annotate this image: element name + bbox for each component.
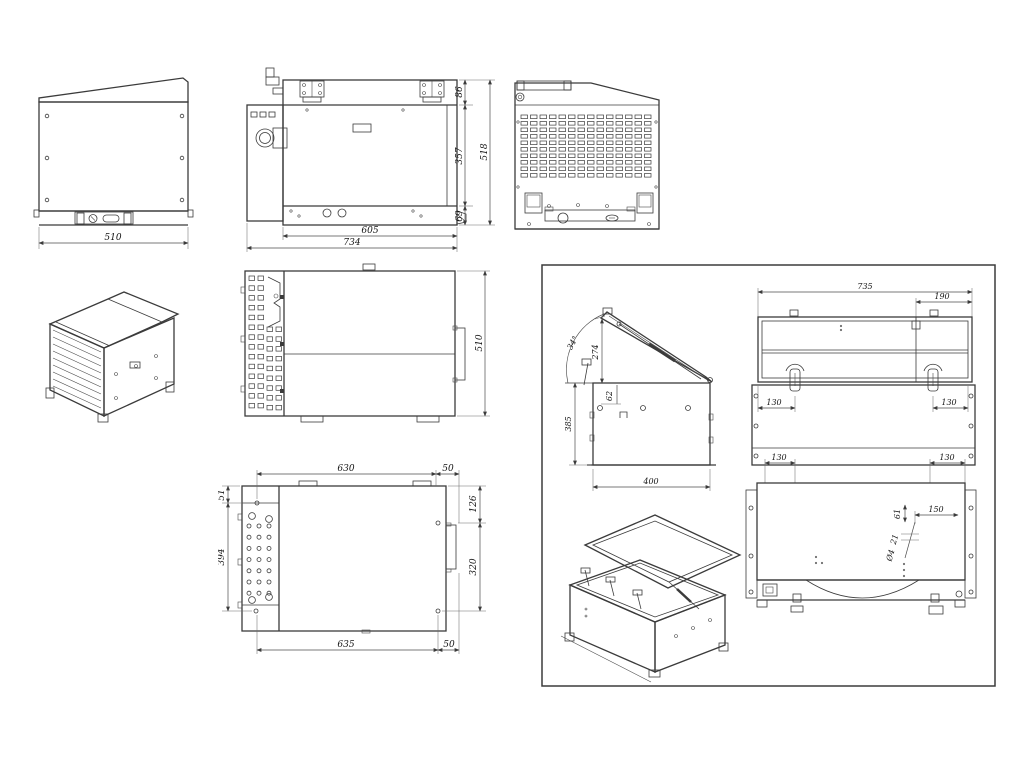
dim-openplan-latch-right: 130: [939, 453, 954, 462]
dim-bottom-span: 635: [337, 640, 354, 650]
detail-panel-border: [542, 265, 995, 686]
dim-open-height: 385: [564, 416, 573, 431]
bottom-dims-right: 126 320: [442, 486, 486, 611]
dim-openfront-latch-left: 130: [766, 398, 781, 407]
plan-outline: [245, 271, 455, 416]
front-screws: [45, 114, 184, 202]
plan-vent-grid-left: [249, 276, 264, 408]
isometric-view-closed: [12, 278, 187, 438]
iso-closed-body: [50, 292, 178, 416]
dim-bottom-right-lower: 320: [469, 558, 479, 575]
dim-side-base: 69: [455, 210, 465, 222]
bottom-dims-top: 630 50: [257, 464, 459, 523]
drawing-sheet: 510: [0, 0, 1024, 768]
bottom-dims-bottom: 635 50: [257, 573, 459, 654]
dim-openfront-width: 735: [857, 282, 872, 291]
side-hinges: [300, 81, 444, 102]
iso-closed-louvers: [53, 330, 101, 408]
plan-vent-grid-right: [267, 327, 282, 410]
dim-open-angle: 34°: [565, 334, 580, 351]
bottom-outline: [242, 486, 446, 631]
front-outline: [34, 78, 193, 225]
dim-bottom-edge: 51: [218, 489, 227, 500]
open-plan-view: 130 130 150 61: [746, 453, 976, 614]
dim-openplan-pitch: 21: [889, 533, 901, 546]
plan-dim-depth: 510: [457, 271, 490, 416]
plan-edge-details: [241, 264, 465, 422]
dim-openfront-latch-right: 130: [941, 398, 956, 407]
dim-side-body: 357: [455, 147, 465, 164]
dim-bottom-right-upper: 126: [469, 495, 479, 512]
isometric-view-open: [561, 515, 740, 682]
iso-closed-details: [46, 355, 174, 423]
dim-bottom-side: 50: [443, 640, 455, 650]
detail-panel: 34° 274 62 385 400: [541, 264, 997, 688]
side-view: 86 357 69 518 605 734: [243, 64, 515, 268]
bottom-view: 51 394 630 50 126 320 635: [218, 454, 498, 676]
dim-plan-depth: 510: [475, 334, 485, 351]
dim-openplan-hole: Ø4: [884, 549, 896, 564]
side-dims-bottom: 605 734: [247, 223, 457, 252]
dim-bottom-top-side: 50: [442, 464, 454, 474]
dim-openplan-detail-h: 61: [893, 509, 902, 519]
dim-openplan-latch-left: 130: [771, 453, 786, 462]
open-side-view: 34° 274 62 385 400: [564, 308, 716, 491]
dim-side-lid: 86: [455, 86, 465, 98]
dim-front-width: 510: [104, 233, 121, 243]
rear-bottom-details: [525, 193, 653, 226]
rear-view: [503, 72, 685, 238]
dim-bottom-top-span: 630: [337, 464, 354, 474]
bottom-corner-holes: [249, 501, 440, 613]
dim-side-inner-width: 605: [361, 226, 378, 236]
bottom-edge-details: [238, 481, 456, 633]
dim-open-inset: 62: [605, 391, 614, 401]
dim-openfront-strut: 190: [934, 292, 949, 301]
open-front-view: 735 190 130: [752, 282, 975, 465]
side-dims-right: 86 357 69 518: [455, 80, 495, 225]
dim-side-total: 518: [480, 143, 490, 160]
rear-louver-grid: [521, 115, 651, 177]
front-handle-plate: [75, 212, 133, 224]
dim-openplan-detail-w: 150: [928, 505, 943, 514]
front-dim-width: 510: [39, 227, 188, 249]
plan-handle-cutout: [268, 277, 280, 327]
dim-open-rise: 274: [591, 344, 600, 360]
plan-view: 510: [236, 259, 502, 435]
side-details: [290, 109, 422, 217]
dim-bottom-left-span: 394: [218, 548, 227, 565]
front-view: 510: [33, 73, 251, 263]
dim-side-width: 734: [343, 238, 360, 248]
rear-latch: [516, 81, 571, 101]
dim-open-width: 400: [642, 477, 658, 486]
bottom-hole-grid: [247, 524, 271, 595]
side-exhaust-panel: [247, 68, 287, 221]
